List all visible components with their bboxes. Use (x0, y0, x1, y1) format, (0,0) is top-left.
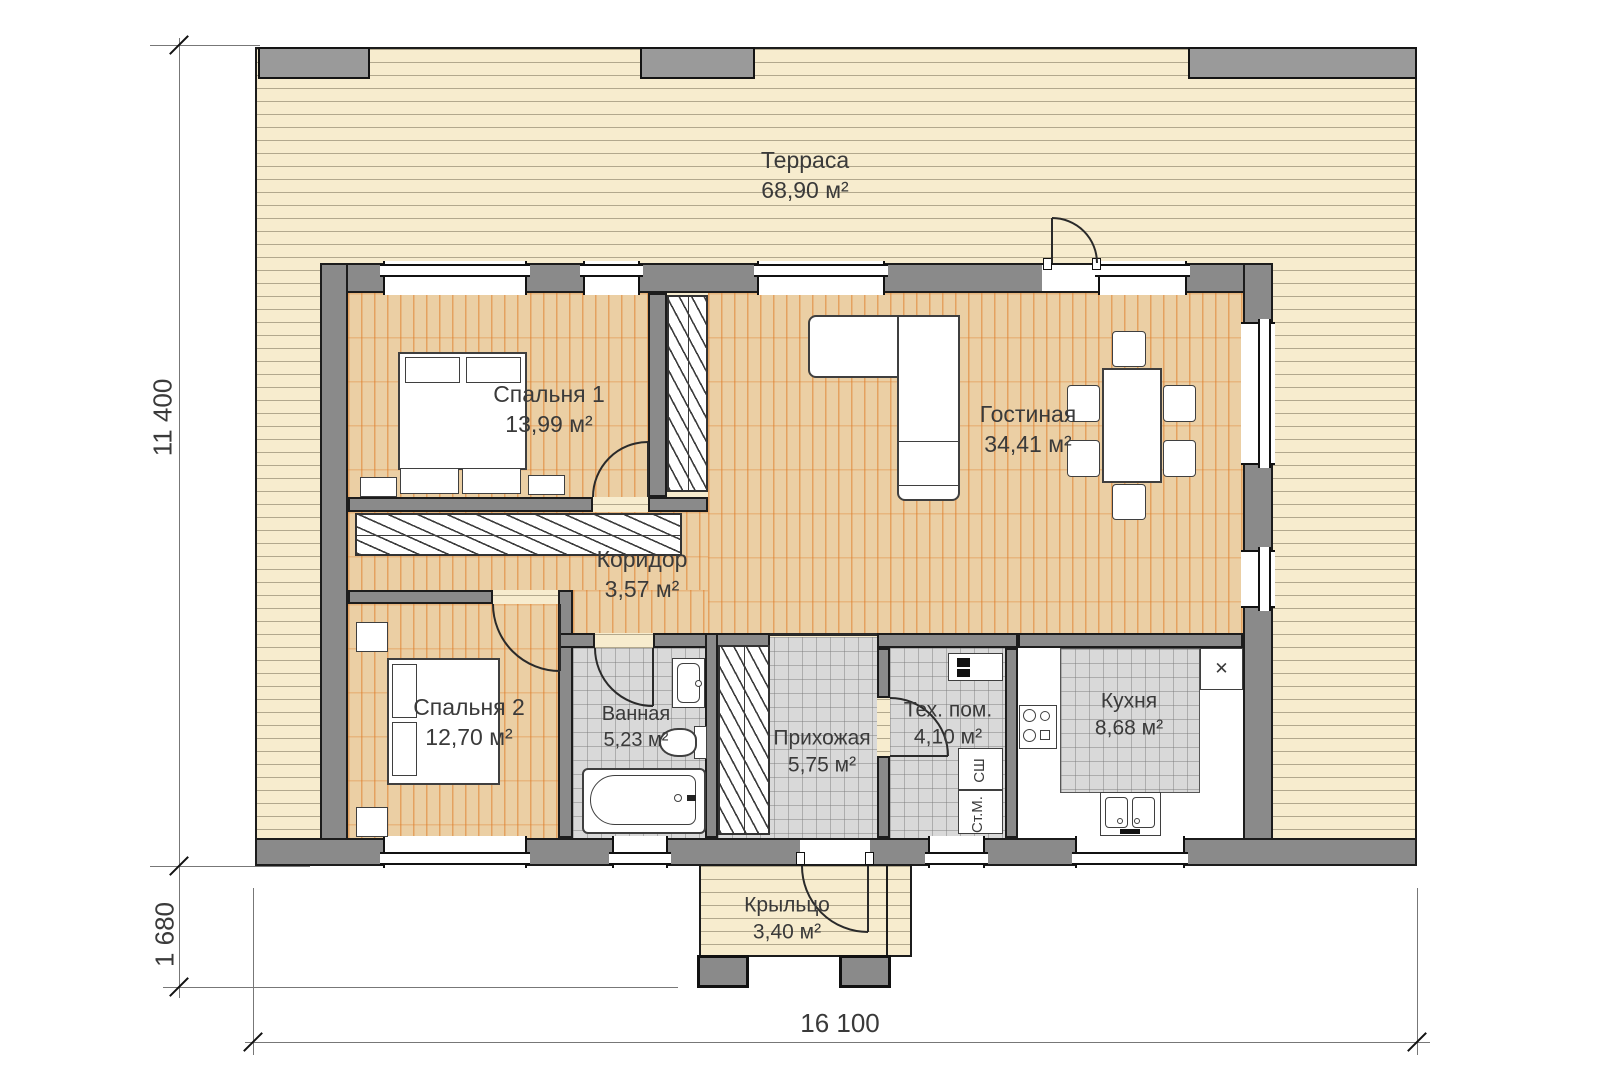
bench (400, 468, 459, 494)
extension-line (253, 888, 254, 1055)
wardrobe (718, 645, 770, 835)
chair (1112, 484, 1146, 520)
label-living: Гостиная 34,41 м² (980, 400, 1077, 460)
door-jamb (1092, 258, 1101, 270)
sofa (897, 315, 960, 501)
pillow (405, 357, 460, 383)
dimension-label-height: 11 400 (148, 343, 179, 493)
fridge-mark: ✕ (1214, 659, 1228, 679)
chair (1112, 331, 1146, 367)
washer-label: Ст.М. (969, 796, 986, 833)
wall-left (320, 263, 348, 866)
label-techroom: Тех. пом. 4,10 м² (904, 697, 992, 752)
entrance-door-opening (800, 840, 870, 864)
label-porch: Крыльцо 3,40 м² (744, 892, 830, 947)
threshold-line (770, 633, 877, 636)
window (757, 261, 885, 295)
dining-table (1102, 368, 1162, 483)
door-jamb (865, 852, 874, 865)
wall-hall-tech (877, 756, 890, 838)
bench (462, 468, 521, 494)
window (383, 836, 527, 868)
label-terrace: Терраса 68,90 м² (761, 146, 849, 206)
nightstand (528, 475, 565, 495)
nightstand (356, 807, 388, 837)
dimension-label-width: 16 100 (765, 1008, 915, 1039)
terrace-pier (1188, 47, 1417, 79)
window (928, 836, 985, 868)
sink (672, 658, 705, 708)
label-corridor: Коридор 3,57 м² (597, 545, 688, 605)
wall-kitchen-top (1018, 633, 1243, 648)
dryer-label: СШ (971, 758, 988, 783)
wall-bedroom1-bottom (648, 497, 708, 512)
dimension-line-bottom (245, 1042, 1430, 1043)
label-hallway: Прихожая 5,75 м² (773, 725, 870, 780)
wall-tech-kitchen (1005, 648, 1018, 838)
window (612, 836, 668, 868)
window (1075, 836, 1185, 868)
pillow (466, 357, 521, 383)
door-jamb (796, 852, 805, 865)
kitchen-sink (1100, 792, 1161, 836)
wardrobe (667, 295, 708, 492)
stove (1019, 705, 1057, 749)
nightstand (356, 622, 388, 652)
wall-bedroom1-right (648, 293, 667, 497)
door-jamb (1043, 258, 1052, 270)
window (1241, 322, 1275, 465)
wall-bathroom-left (558, 590, 573, 838)
label-bedroom2: Спальня 2 12,70 м² (413, 693, 525, 753)
floor-plan: СШ Ст.М. ✕ (0, 0, 1600, 1080)
ground-line (163, 987, 678, 988)
bathtub (582, 768, 706, 834)
sofa-cushion-line (899, 441, 958, 442)
dimension-line-left (179, 38, 180, 998)
fridge: ✕ (1200, 648, 1243, 690)
dryer: СШ (958, 748, 1003, 790)
nightstand (360, 477, 397, 497)
wall-techroom-top (877, 633, 1018, 648)
chair (1163, 385, 1196, 422)
window (1098, 261, 1187, 295)
terrace-pier (640, 47, 755, 79)
window (1241, 550, 1275, 608)
wall-bedroom2-top (348, 590, 493, 604)
label-bedroom1: Спальня 1 13,99 м² (493, 380, 605, 440)
porch-step-edge (886, 866, 888, 955)
terrace-pier (258, 47, 370, 79)
washing-machine: Ст.М. (958, 790, 1003, 834)
porch-post (697, 955, 749, 988)
chair (1163, 440, 1196, 477)
wall-hall-tech (877, 648, 890, 698)
wall-bathroom-top (558, 633, 595, 648)
label-kitchen: Кухня 8,68 м² (1095, 688, 1163, 743)
boiler (948, 653, 1003, 681)
porch-post (839, 955, 891, 988)
label-bathroom: Ванная 5,23 м² (602, 701, 671, 753)
extension-line (1417, 888, 1418, 1055)
extension-line (150, 45, 260, 46)
wall-bedroom1-bottom (348, 497, 593, 512)
window (583, 261, 640, 295)
sofa-cushion-line (899, 485, 958, 486)
dimension-label-porch: 1 680 (150, 860, 181, 1010)
window (383, 261, 527, 295)
